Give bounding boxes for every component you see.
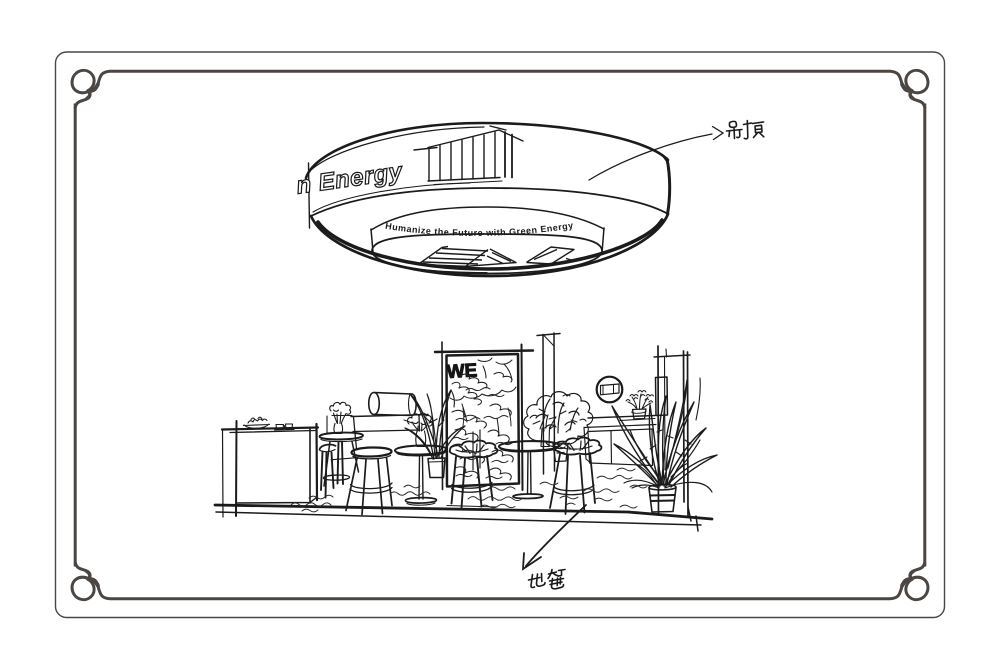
svg-text:WE: WE bbox=[446, 360, 478, 383]
